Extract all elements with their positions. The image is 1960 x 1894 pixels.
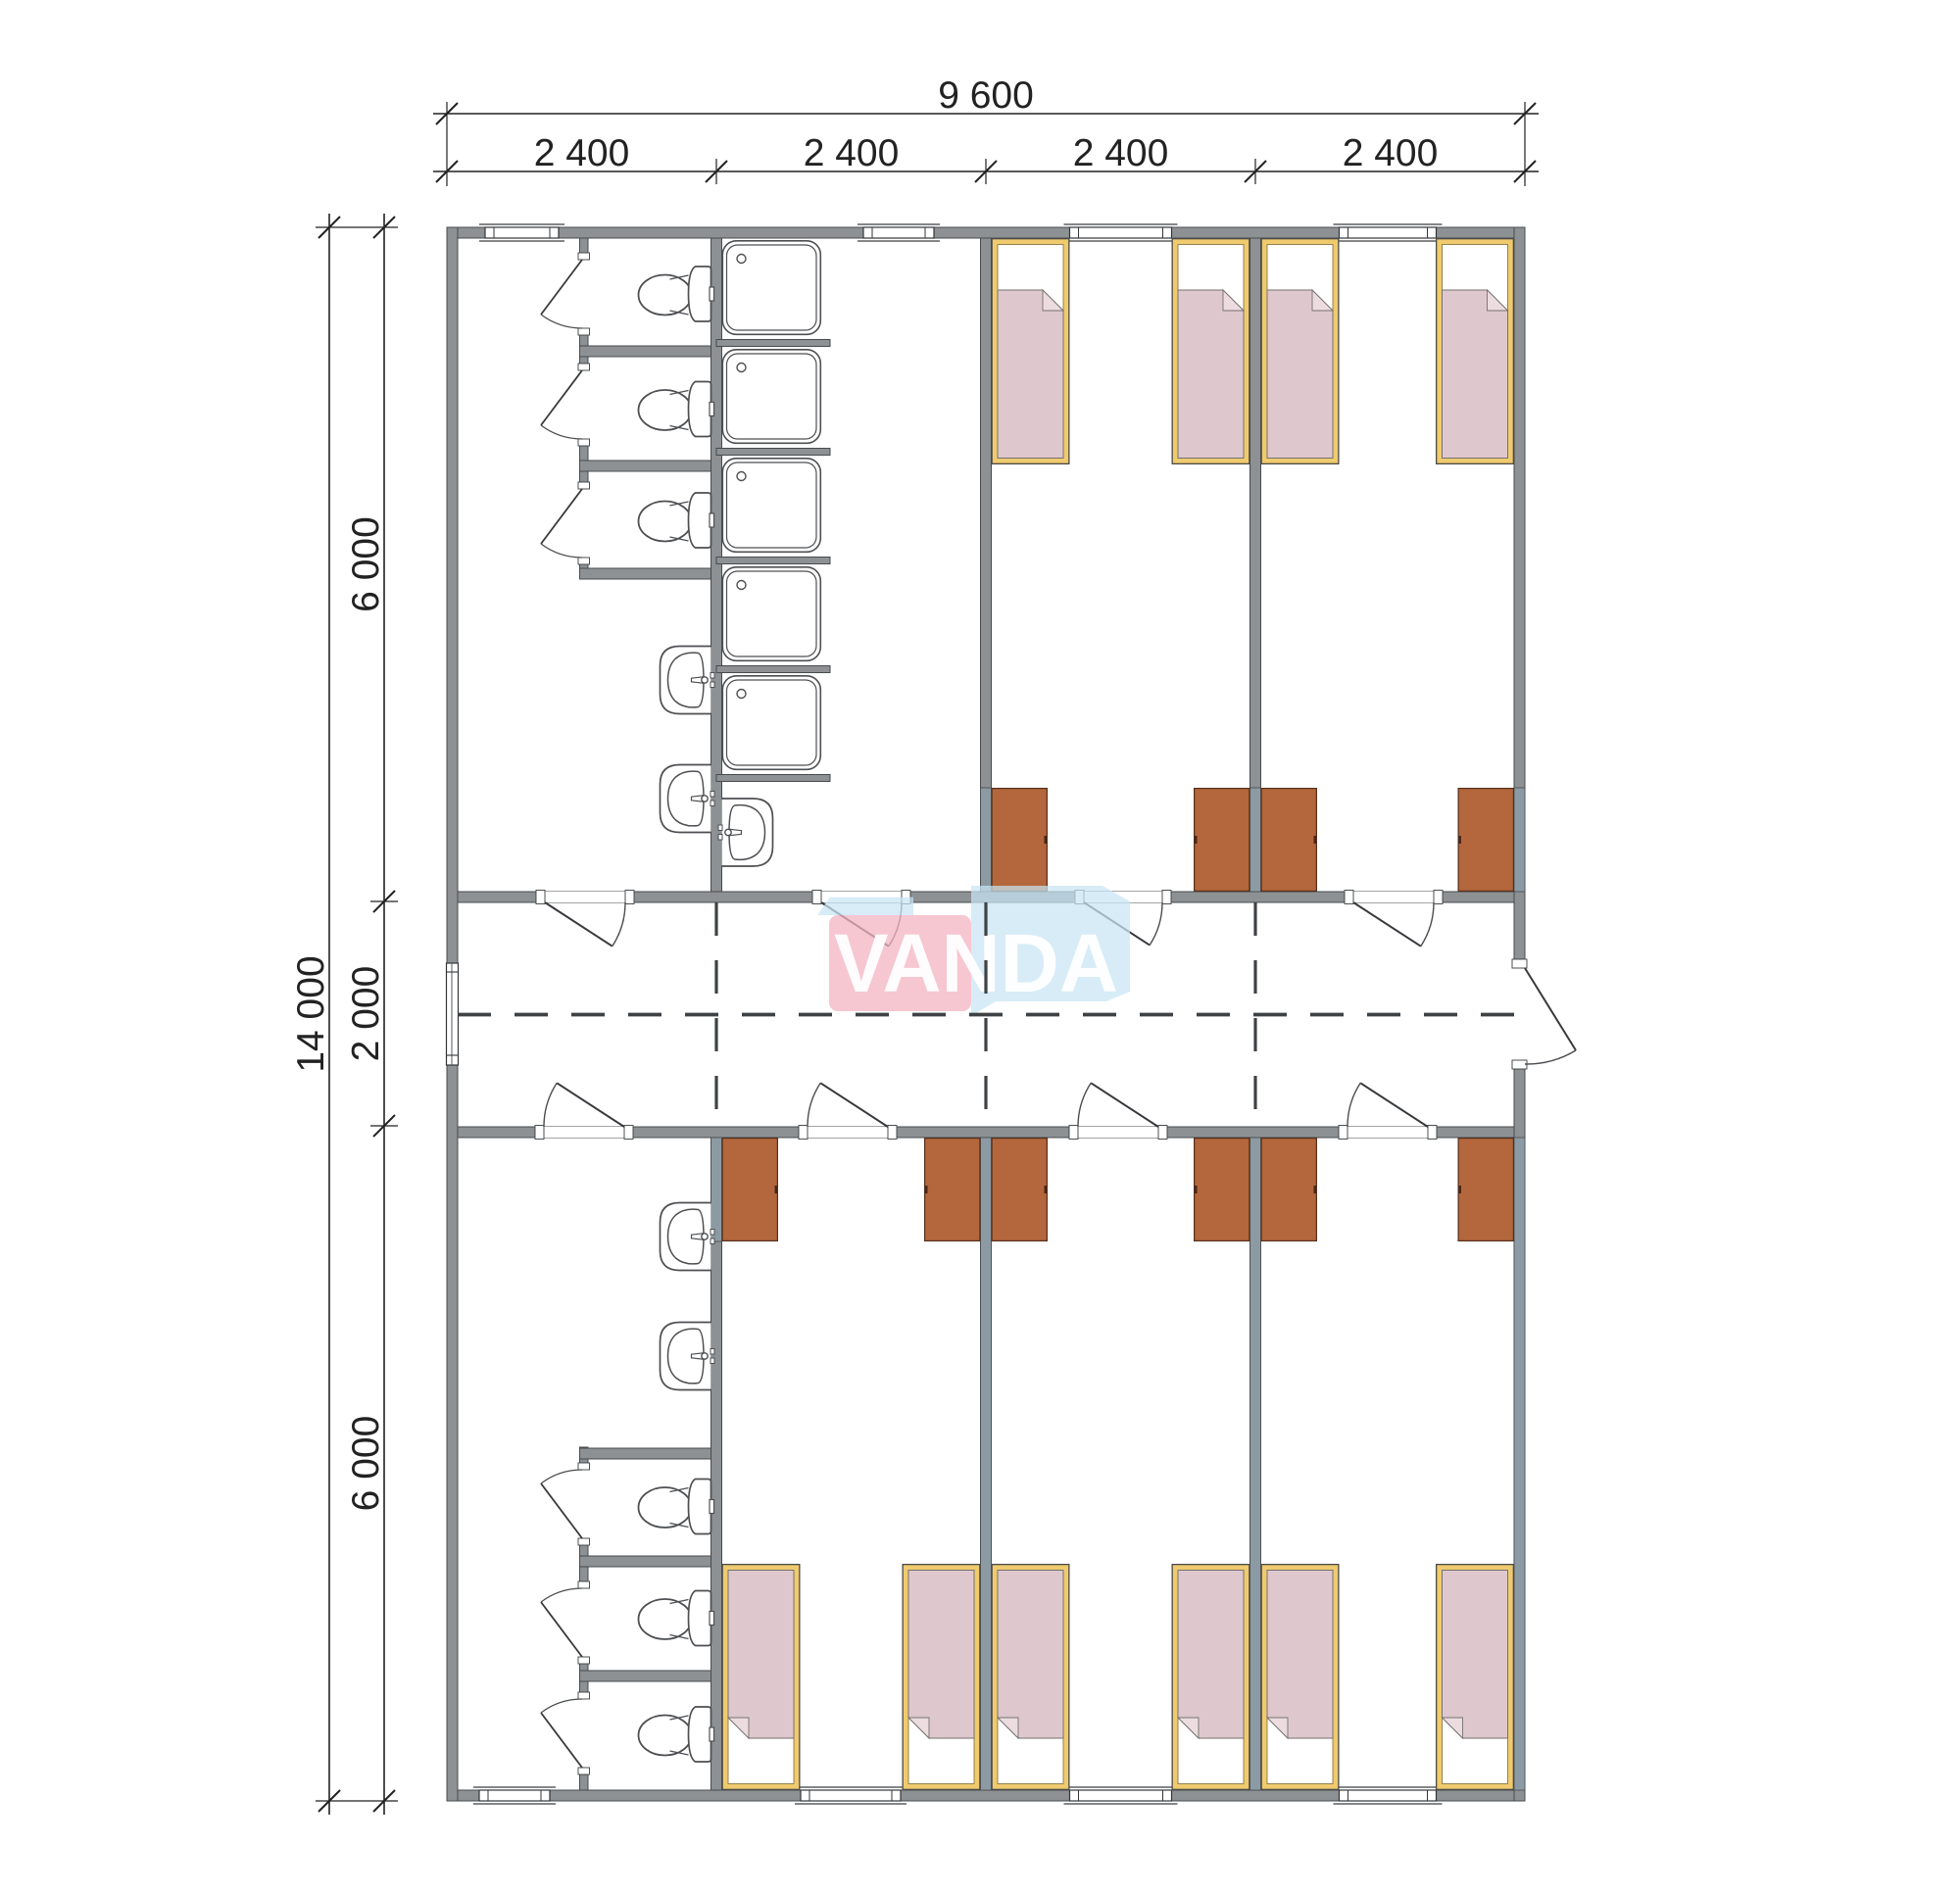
svg-text:VANDA: VANDA xyxy=(834,917,1118,1009)
svg-text:2 000: 2 000 xyxy=(345,966,387,1062)
svg-text:6 000: 6 000 xyxy=(345,516,387,612)
svg-text:6 000: 6 000 xyxy=(345,1416,387,1512)
svg-text:2 400: 2 400 xyxy=(1343,132,1439,174)
svg-text:14 000: 14 000 xyxy=(290,955,332,1072)
svg-text:9 600: 9 600 xyxy=(938,74,1034,117)
svg-text:2 400: 2 400 xyxy=(804,132,900,174)
svg-text:2 400: 2 400 xyxy=(534,132,630,174)
svg-text:2 400: 2 400 xyxy=(1073,132,1169,174)
